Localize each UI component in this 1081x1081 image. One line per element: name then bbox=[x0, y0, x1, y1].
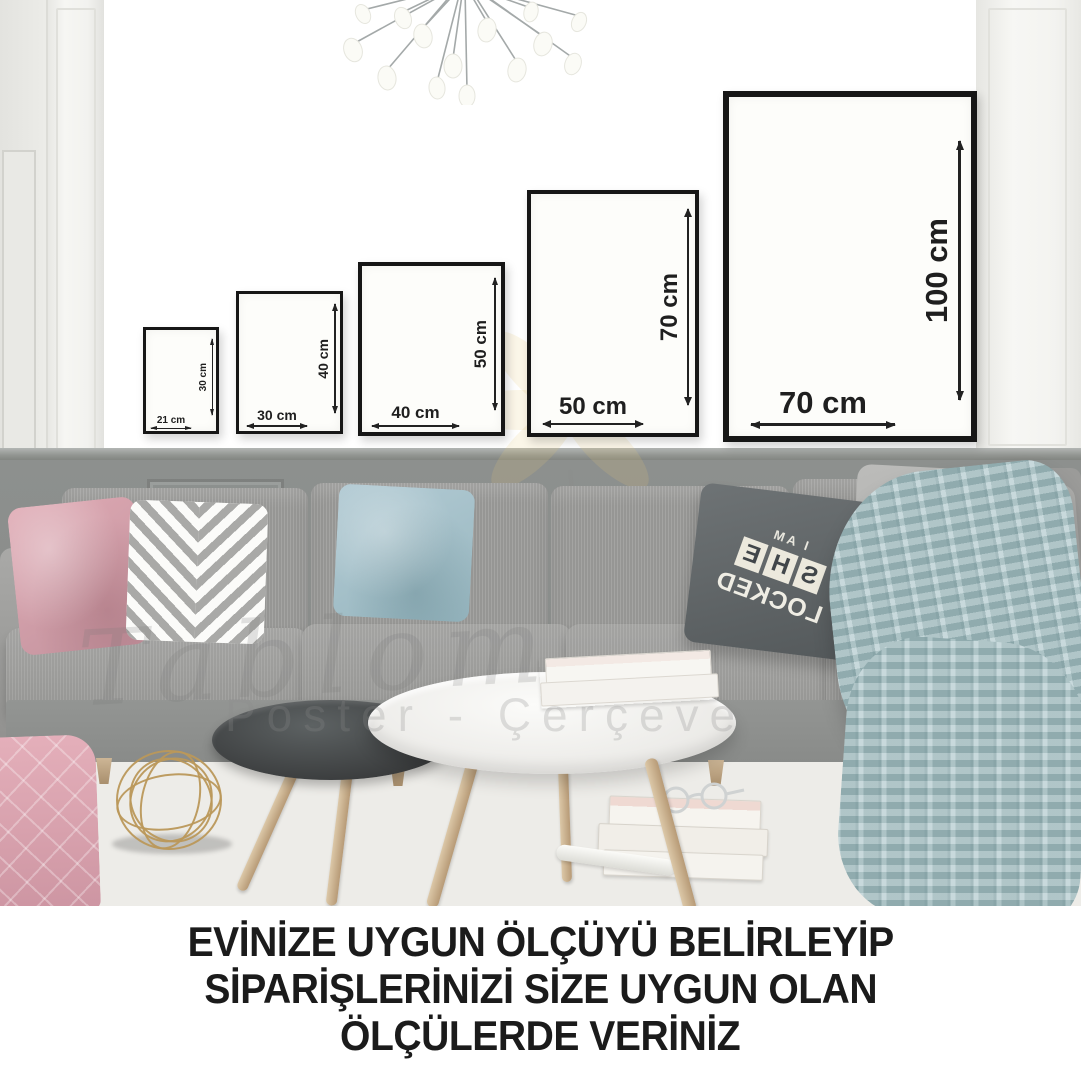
width-arrow bbox=[247, 425, 307, 427]
height-arrow bbox=[334, 304, 336, 413]
caption-line-3: ÖLÇÜLERDE VERİNİZ bbox=[340, 1012, 740, 1059]
height-dimension: 50 cm bbox=[471, 278, 496, 410]
product-size-guide-image: 30 cm 21 cm 40 cm 30 cm 50 cm 40 cm 70 c… bbox=[0, 0, 1081, 1081]
width-dimension: 30 cm bbox=[247, 407, 307, 427]
pillow-letter-box: S bbox=[792, 557, 827, 594]
frame-70x100: 100 cm 70 cm bbox=[723, 91, 977, 442]
width-arrow bbox=[543, 423, 643, 426]
height-dimension: 30 cm bbox=[198, 339, 214, 415]
pilaster-left bbox=[48, 0, 104, 458]
knit-blanket-drape bbox=[833, 632, 1081, 928]
height-arrow bbox=[212, 339, 214, 415]
caption-band: EVİNİZE UYGUN ÖLÇÜYÜ BELİRLEYİP SİPARİŞL… bbox=[0, 906, 1081, 1081]
caption-line-2: SİPARİŞLERİNİZİ SİZE UYGUN OLAN bbox=[204, 965, 877, 1012]
watermark-subtitle: Poster - Çerçeve bbox=[225, 688, 746, 742]
width-label: 50 cm bbox=[559, 393, 627, 421]
width-arrow bbox=[751, 423, 895, 426]
wall-left-panel bbox=[2, 150, 36, 474]
frame-30x40: 40 cm 30 cm bbox=[236, 291, 343, 434]
width-label: 21 cm bbox=[157, 415, 185, 426]
height-label: 100 cm bbox=[919, 218, 955, 323]
width-label: 40 cm bbox=[391, 403, 439, 423]
frame-21x30: 30 cm 21 cm bbox=[143, 327, 219, 434]
frame-40x50: 50 cm 40 cm bbox=[358, 262, 505, 436]
pink-pouf bbox=[0, 734, 101, 914]
height-dimension: 70 cm bbox=[656, 209, 690, 405]
height-arrow bbox=[687, 209, 690, 405]
caption-line-1: EVİNİZE UYGUN ÖLÇÜYÜ BELİRLEYİP bbox=[187, 918, 893, 965]
width-dimension: 40 cm bbox=[372, 403, 459, 427]
width-arrow bbox=[151, 428, 191, 430]
width-dimension: 21 cm bbox=[151, 415, 191, 430]
width-label: 70 cm bbox=[779, 385, 867, 421]
pilaster-right bbox=[976, 0, 1081, 456]
width-label: 30 cm bbox=[257, 407, 297, 423]
height-label: 50 cm bbox=[471, 320, 491, 368]
width-arrow bbox=[372, 425, 459, 427]
height-label: 40 cm bbox=[315, 339, 331, 379]
sphere-ring bbox=[112, 740, 230, 859]
width-dimension: 70 cm bbox=[751, 385, 895, 426]
height-dimension: 40 cm bbox=[315, 304, 336, 413]
height-dimension: 100 cm bbox=[919, 141, 961, 400]
pilaster-groove bbox=[56, 8, 96, 450]
height-arrow bbox=[494, 278, 496, 410]
width-dimension: 50 cm bbox=[543, 393, 643, 426]
frame-50x70: 70 cm 50 cm bbox=[527, 190, 699, 437]
height-label: 30 cm bbox=[198, 363, 209, 391]
height-label: 70 cm bbox=[656, 273, 684, 341]
pillow-letter-box: H bbox=[762, 547, 798, 585]
chandelier bbox=[325, 0, 605, 105]
height-arrow bbox=[958, 141, 961, 400]
gold-wire-sphere bbox=[116, 750, 222, 850]
pilaster-groove bbox=[988, 8, 1067, 446]
